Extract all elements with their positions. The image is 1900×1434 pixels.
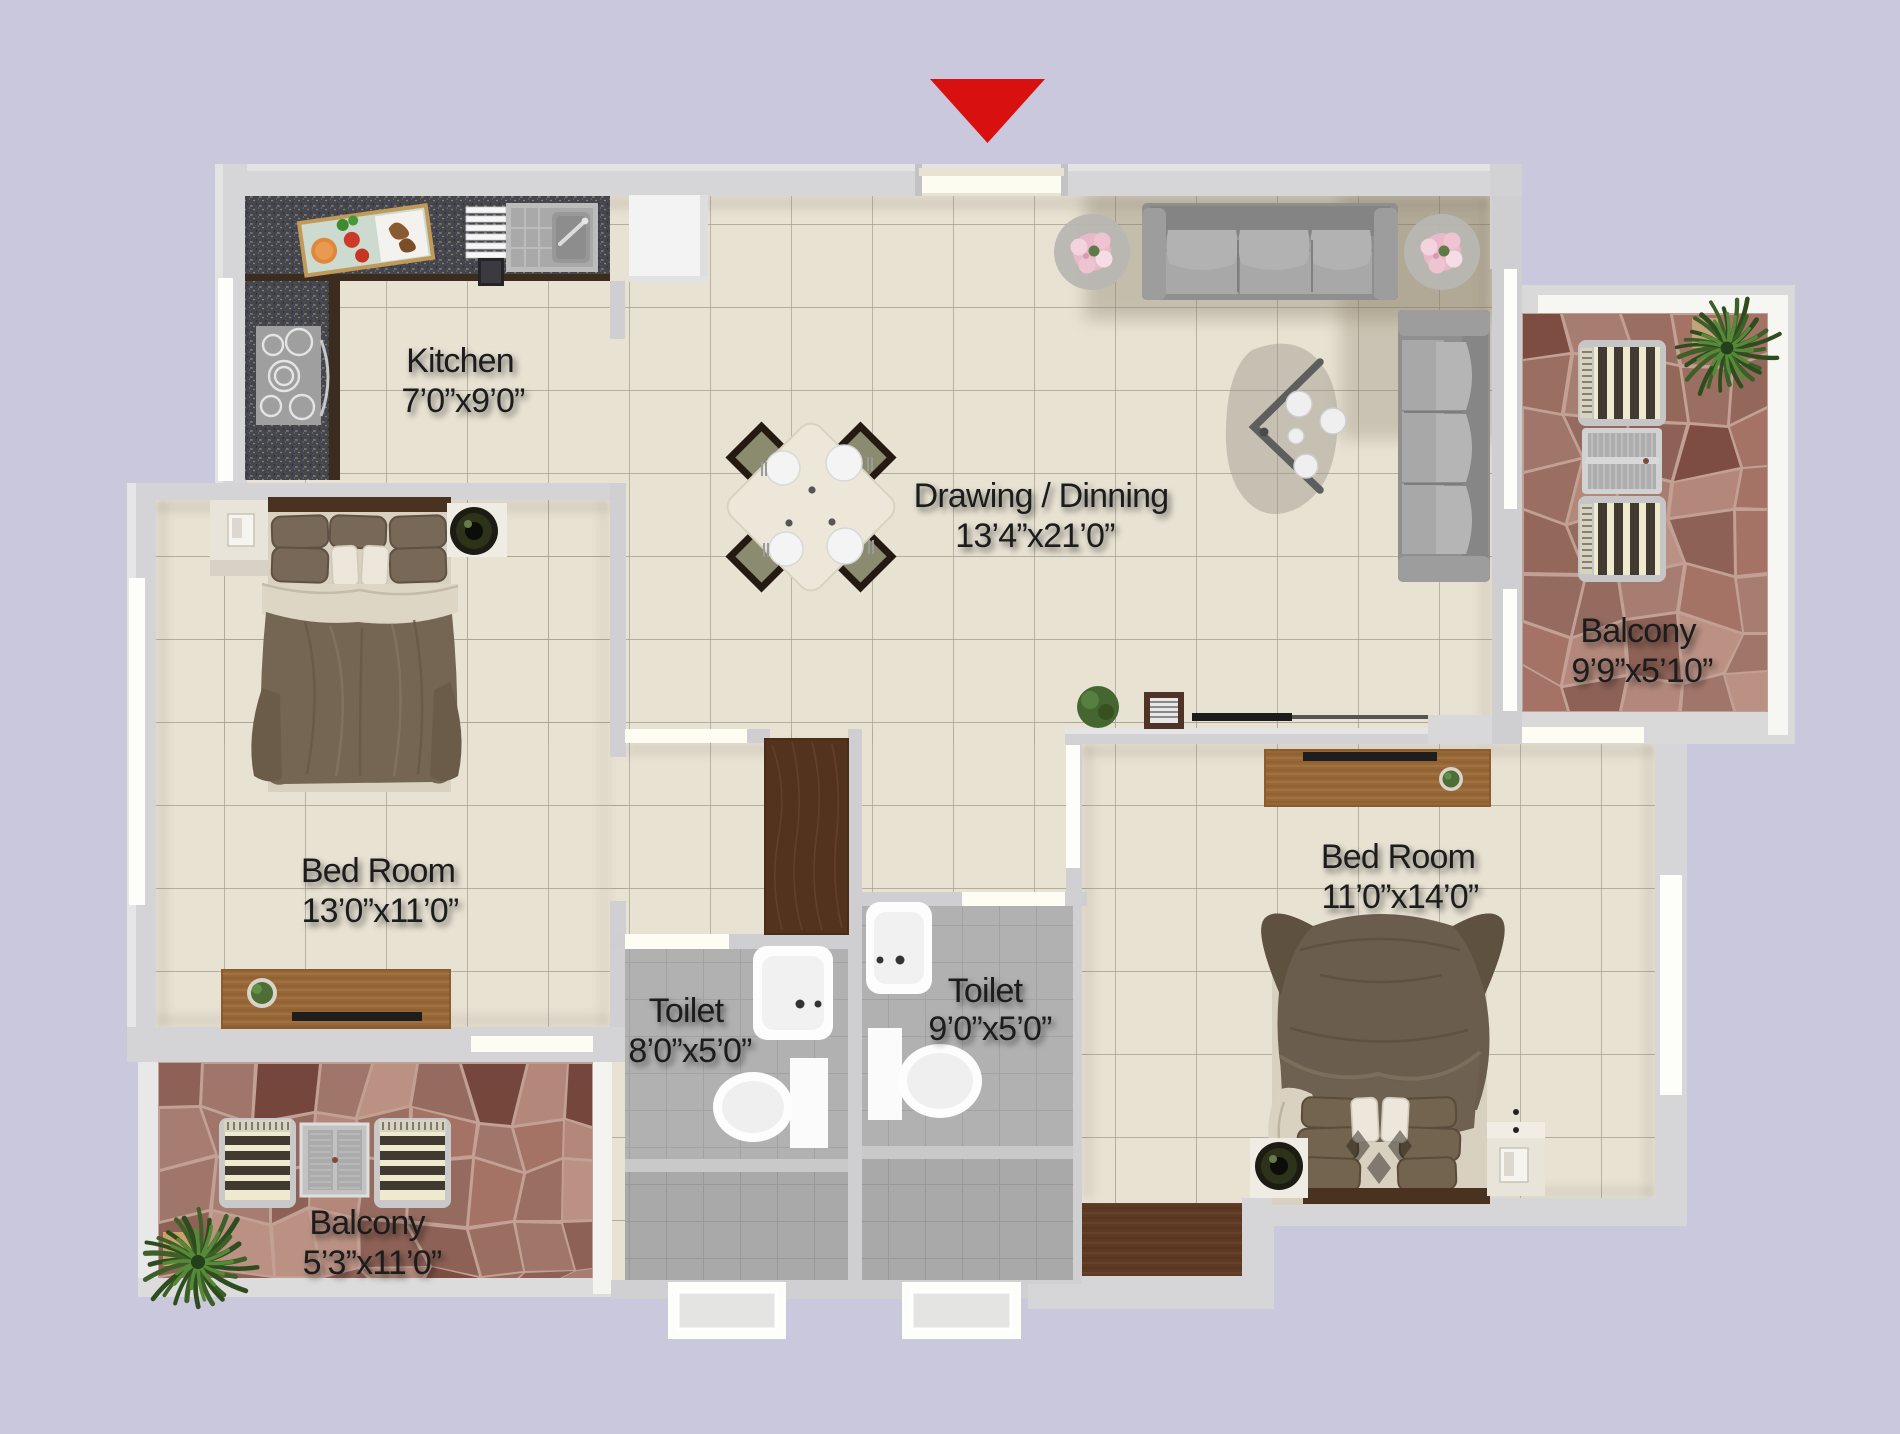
svg-text:Toilet: Toilet: [948, 972, 1024, 1010]
svg-text:13’0”x11’0”: 13’0”x11’0”: [302, 892, 459, 930]
svg-text:7’0”x9’0”: 7’0”x9’0”: [401, 382, 525, 420]
svg-text:13’4”x21’0”: 13’4”x21’0”: [955, 517, 1115, 555]
svg-text:Balcony: Balcony: [309, 1204, 425, 1242]
svg-text:Balcony: Balcony: [1580, 612, 1696, 650]
svg-text:11’0”x14’0”: 11’0”x14’0”: [1322, 878, 1479, 916]
svg-text:Kitchen: Kitchen: [406, 342, 514, 380]
svg-text:Bed Room: Bed Room: [1321, 838, 1475, 876]
svg-text:5’3”x11’0”: 5’3”x11’0”: [303, 1244, 442, 1282]
svg-text:9’9”x5’10”: 9’9”x5’10”: [1571, 652, 1713, 690]
svg-text:9’0”x5’0”: 9’0”x5’0”: [928, 1010, 1052, 1048]
svg-text:Toilet: Toilet: [649, 992, 725, 1030]
svg-text:8’0”x5’0”: 8’0”x5’0”: [628, 1032, 752, 1070]
svg-text:Bed Room: Bed Room: [301, 852, 455, 890]
svg-text:Drawing / Dinning: Drawing / Dinning: [914, 477, 1169, 515]
